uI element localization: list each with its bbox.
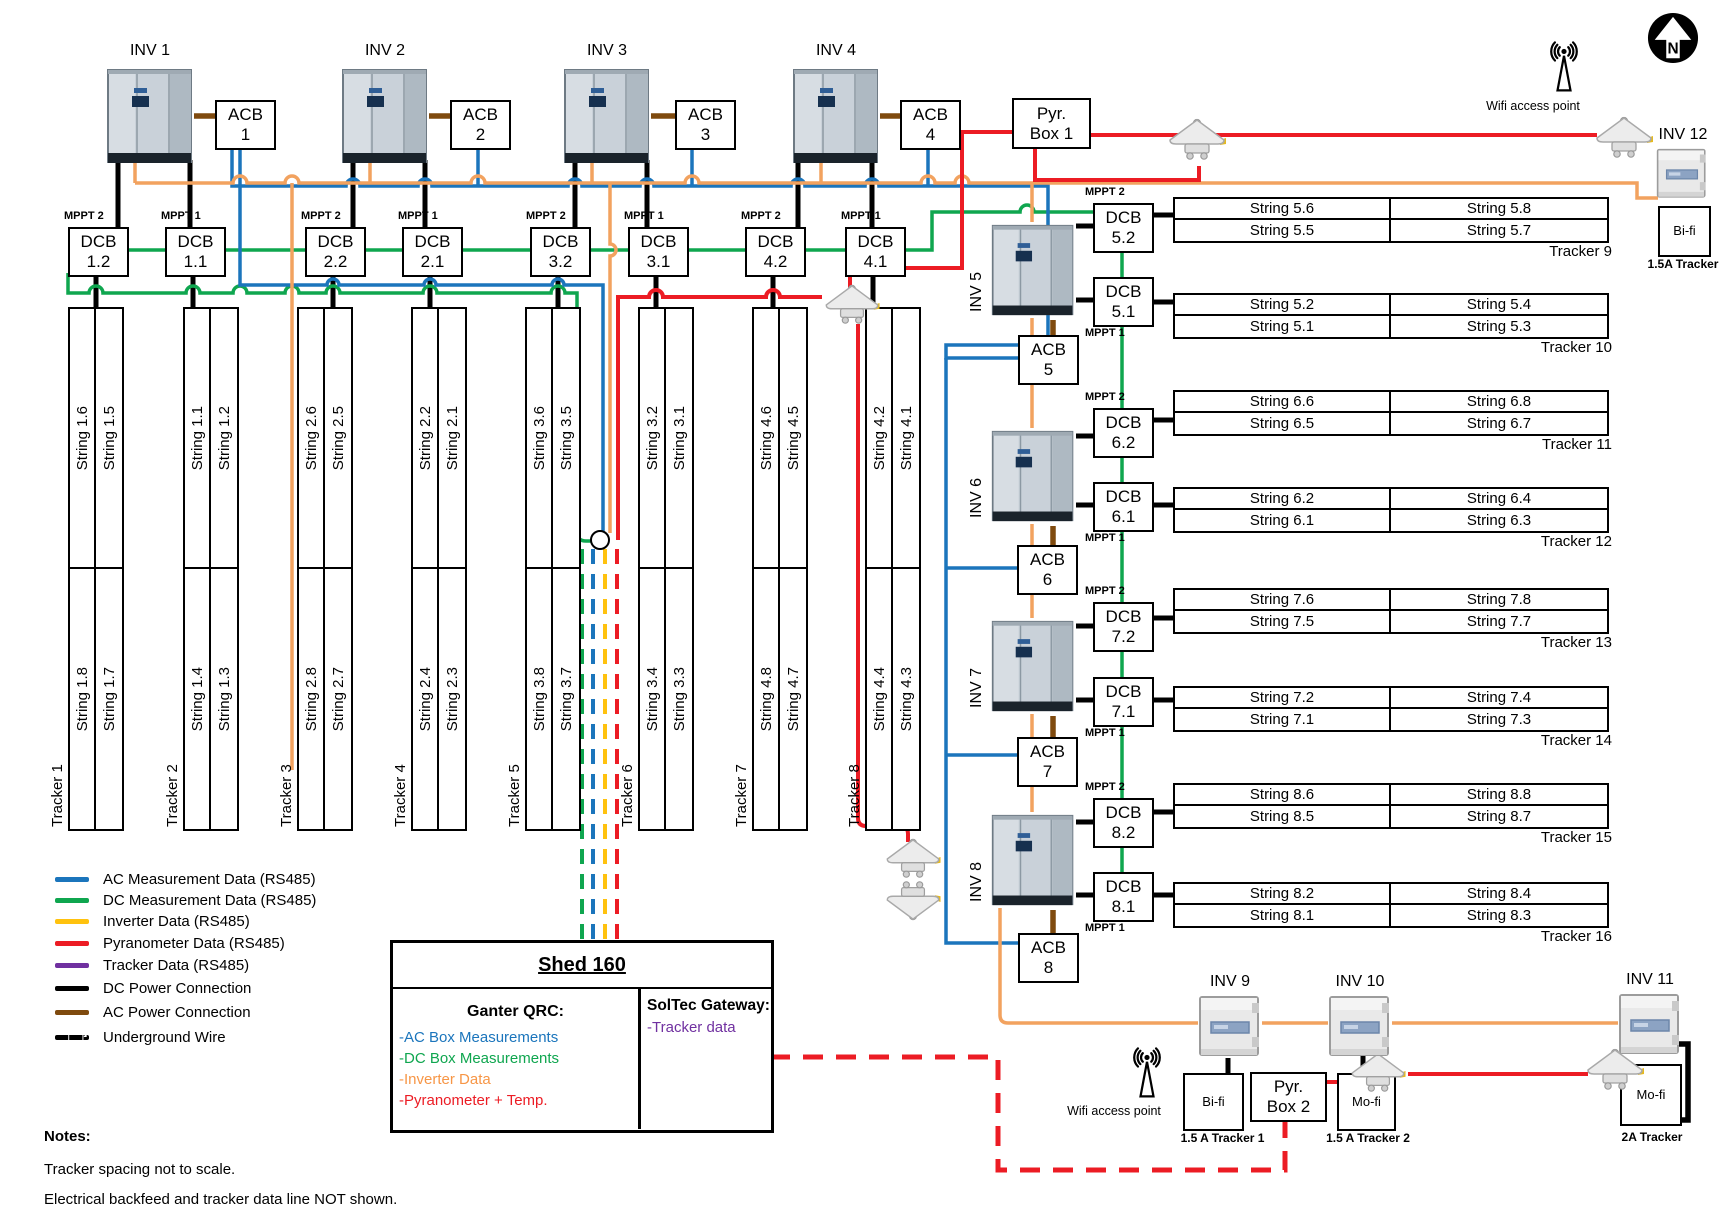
mppt-label: MPPT 1 bbox=[841, 210, 881, 222]
string-label: String 1.3 bbox=[216, 667, 233, 731]
string-cell: String 5.2 bbox=[1175, 295, 1391, 316]
string-cell: String 1.3 bbox=[211, 569, 237, 829]
mppt-label: MPPT 1 bbox=[1085, 327, 1125, 339]
comm-box-sublabel: 2A Tracker bbox=[1612, 1130, 1692, 1144]
tracker-table: String 2.2String 2.1String 2.4String 2.3 bbox=[411, 307, 467, 831]
string-label: String 4.5 bbox=[785, 406, 802, 470]
tracker-table: String 4.2String 4.1String 4.4String 4.3 bbox=[865, 307, 921, 831]
string-cell: String 7.6 bbox=[1175, 590, 1391, 611]
string-cell: String 3.5 bbox=[553, 309, 579, 569]
inverter-label: INV 1 bbox=[97, 42, 203, 60]
string-cell: String 6.1 bbox=[1175, 510, 1391, 531]
string-cell: String 3.2 bbox=[640, 309, 666, 569]
inverter-label: INV 4 bbox=[783, 42, 889, 60]
string-cell: String 8.3 bbox=[1391, 905, 1607, 926]
legend-row: Underground Wire bbox=[55, 1029, 226, 1045]
string-label: String 3.8 bbox=[531, 667, 548, 731]
shed-divider bbox=[638, 989, 641, 1129]
string-cell: String 2.3 bbox=[439, 569, 465, 829]
dcb-box: DCB 6.1 bbox=[1093, 482, 1154, 532]
legend-row: DC Measurement Data (RS485) bbox=[55, 892, 316, 908]
inverter-unit bbox=[107, 66, 193, 171]
string-label: String 2.4 bbox=[417, 667, 434, 731]
string-cell: String 6.4 bbox=[1391, 489, 1607, 510]
string-cell: String 8.4 bbox=[1391, 884, 1607, 905]
string-cell: String 7.1 bbox=[1175, 709, 1391, 730]
tracker-table: String 8.6String 8.8String 8.5String 8.7 bbox=[1173, 783, 1609, 829]
string-cell: String 5.3 bbox=[1391, 316, 1607, 337]
string-cell: String 2.8 bbox=[299, 569, 325, 829]
string-label: String 4.4 bbox=[871, 667, 888, 731]
string-cell: String 6.3 bbox=[1391, 510, 1607, 531]
shed-title: Shed 160 bbox=[393, 943, 771, 989]
string-label: String 1.1 bbox=[189, 406, 206, 470]
tracker-name-label: Tracker 2 bbox=[164, 700, 181, 827]
acb-box: ACB 7 bbox=[1017, 737, 1078, 787]
legend-label: AC Measurement Data (RS485) bbox=[103, 871, 316, 888]
dcb-box: DCB 8.1 bbox=[1093, 872, 1154, 922]
string-cell: String 7.7 bbox=[1391, 611, 1607, 632]
string-label: String 2.1 bbox=[444, 406, 461, 470]
dcb-box: DCB 5.1 bbox=[1093, 277, 1154, 327]
shed-left-item: -Inverter Data bbox=[399, 1071, 491, 1088]
string-cell: String 3.6 bbox=[527, 309, 553, 569]
tracker-table: String 6.2String 6.4String 6.1String 6.3 bbox=[1173, 487, 1609, 533]
string-cell: String 1.2 bbox=[211, 309, 237, 569]
comm-box-sublabel: 1.5A Tracker bbox=[1638, 257, 1728, 271]
tracker-name-label: Tracker 11 bbox=[1400, 436, 1612, 453]
legend-label: Tracker Data (RS485) bbox=[103, 957, 249, 974]
comm-box-bifi-top: Bi-fi bbox=[1658, 206, 1711, 257]
inverter-label: INV 2 bbox=[332, 42, 438, 60]
dcb-box: DCB 2.1 bbox=[402, 227, 463, 277]
dcb-box: DCB 6.2 bbox=[1093, 408, 1154, 458]
string-cell: String 1.4 bbox=[185, 569, 211, 829]
legend-label: DC Power Connection bbox=[103, 980, 251, 997]
string-cell: String 7.2 bbox=[1175, 688, 1391, 709]
string-cell: String 6.6 bbox=[1175, 392, 1391, 413]
string-label: String 2.2 bbox=[417, 406, 434, 470]
dcb-box: DCB 1.1 bbox=[165, 227, 226, 277]
legend-label: DC Measurement Data (RS485) bbox=[103, 892, 316, 909]
dcb-box: DCB 2.2 bbox=[305, 227, 366, 277]
dcb-box: DCB 3.2 bbox=[530, 227, 591, 277]
string-cell: String 3.7 bbox=[553, 569, 579, 829]
string-cell: String 1.7 bbox=[96, 569, 122, 829]
inverter-label: INV 12 bbox=[1650, 126, 1716, 144]
string-label: String 4.2 bbox=[871, 406, 888, 470]
shed-left-item: -DC Box Measurements bbox=[399, 1050, 559, 1067]
inverter-unit bbox=[1328, 995, 1392, 1064]
acb-box: ACB 3 bbox=[675, 100, 736, 150]
legend-swatch-dc_black bbox=[55, 986, 89, 991]
dcb-box: DCB 1.2 bbox=[68, 227, 129, 277]
string-cell: String 1.6 bbox=[70, 309, 96, 569]
mppt-label: MPPT 2 bbox=[526, 210, 566, 222]
string-cell: String 3.8 bbox=[527, 569, 553, 829]
tracker-table: String 5.2String 5.4String 5.1String 5.3 bbox=[1173, 293, 1609, 339]
string-label: String 4.1 bbox=[898, 406, 915, 470]
mppt-label: MPPT 1 bbox=[624, 210, 664, 222]
string-cell: String 5.4 bbox=[1391, 295, 1607, 316]
string-cell: String 4.7 bbox=[780, 569, 806, 829]
tracker-table: String 7.2String 7.4String 7.1String 7.3 bbox=[1173, 686, 1609, 732]
string-label: String 3.7 bbox=[558, 667, 575, 731]
string-label: String 1.8 bbox=[74, 667, 91, 731]
legend-swatch-dc_black bbox=[55, 1035, 89, 1040]
legend-swatch-tracker_purple bbox=[55, 963, 89, 968]
string-label: String 3.3 bbox=[671, 667, 688, 731]
string-label: String 4.8 bbox=[758, 667, 775, 731]
acb-box: ACB 1 bbox=[215, 100, 276, 150]
string-cell: String 5.5 bbox=[1175, 220, 1391, 241]
string-cell: String 4.8 bbox=[754, 569, 780, 829]
acb-box: ACB 4 bbox=[900, 100, 961, 150]
string-label: String 4.6 bbox=[758, 406, 775, 470]
tracker-table: String 7.6String 7.8String 7.5String 7.7 bbox=[1173, 588, 1609, 634]
inverter-label: INV 8 bbox=[968, 820, 986, 902]
mppt-label: MPPT 1 bbox=[1085, 922, 1125, 934]
pyranometer-icon bbox=[1168, 118, 1226, 165]
string-label: String 2.7 bbox=[330, 667, 347, 731]
string-label: String 1.7 bbox=[101, 667, 118, 731]
string-cell: String 2.1 bbox=[439, 309, 465, 569]
wifi-access-point-label-top: Wifi access point bbox=[1483, 99, 1583, 113]
comm-box-sublabel: 1.5 A Tracker 2 bbox=[1318, 1131, 1418, 1145]
legend-swatch-ac_blue bbox=[55, 877, 89, 882]
acb-box: ACB 8 bbox=[1018, 933, 1079, 983]
mppt-label: MPPT 2 bbox=[301, 210, 341, 222]
mppt-label: MPPT 2 bbox=[64, 210, 104, 222]
tracker-name-label: Tracker 6 bbox=[619, 700, 636, 827]
string-cell: String 4.2 bbox=[867, 309, 893, 569]
legend-swatch-inverter_yellow bbox=[55, 919, 89, 924]
mppt-label: MPPT 1 bbox=[398, 210, 438, 222]
tracker-name-label: Tracker 7 bbox=[733, 700, 750, 827]
mppt-label: MPPT 2 bbox=[741, 210, 781, 222]
inverter-unit bbox=[990, 428, 1076, 529]
string-label: String 3.5 bbox=[558, 406, 575, 470]
string-cell: String 5.7 bbox=[1391, 220, 1607, 241]
string-label: String 2.3 bbox=[444, 667, 461, 731]
string-label: String 1.5 bbox=[101, 406, 118, 470]
legend-row: Tracker Data (RS485) bbox=[55, 957, 249, 973]
tracker-table: String 1.1String 1.2String 1.4String 1.3 bbox=[183, 307, 239, 831]
wifi-access-point-label-bottom: Wifi access point bbox=[1064, 1104, 1164, 1118]
string-cell: String 3.4 bbox=[640, 569, 666, 829]
string-label: String 2.6 bbox=[303, 406, 320, 470]
wifi-icon bbox=[1545, 38, 1583, 96]
mppt-label: MPPT 1 bbox=[1085, 727, 1125, 739]
mppt-label: MPPT 2 bbox=[1085, 585, 1125, 597]
acb-box: ACB 6 bbox=[1017, 545, 1078, 595]
tracker-name-label: Tracker 3 bbox=[278, 700, 295, 827]
legend-row: AC Power Connection bbox=[55, 1004, 251, 1020]
tracker-table: String 6.6String 6.8String 6.5String 6.7 bbox=[1173, 390, 1609, 436]
string-label: String 1.2 bbox=[216, 406, 233, 470]
tracker-name-label: Tracker 14 bbox=[1400, 732, 1612, 749]
string-cell: String 2.5 bbox=[325, 309, 351, 569]
inverter-label: INV 6 bbox=[968, 436, 986, 518]
string-cell: String 5.6 bbox=[1175, 199, 1391, 220]
inverter-label: INV 3 bbox=[554, 42, 660, 60]
inverter-unit bbox=[1618, 993, 1682, 1062]
legend-row: AC Measurement Data (RS485) bbox=[55, 871, 316, 887]
notes-heading: Notes: bbox=[44, 1128, 91, 1145]
string-cell: String 5.8 bbox=[1391, 199, 1607, 220]
string-cell: String 4.3 bbox=[893, 569, 919, 829]
shed-left-item: -Pyranometer + Temp. bbox=[399, 1092, 548, 1109]
acb-box: ACB 2 bbox=[450, 100, 511, 150]
comm-box-bifi-bottom: Bi-fi bbox=[1183, 1073, 1244, 1131]
shed-right-item: -Tracker data bbox=[647, 1019, 736, 1036]
tracker-table: String 3.2String 3.1String 3.4String 3.3 bbox=[638, 307, 694, 831]
string-cell: String 4.1 bbox=[893, 309, 919, 569]
shed-left-title: Ganter QRC: bbox=[393, 1003, 638, 1021]
legend-swatch-ac_brown bbox=[55, 1010, 89, 1015]
inverter-unit bbox=[1655, 148, 1709, 205]
string-cell: String 2.4 bbox=[413, 569, 439, 829]
tracker-name-label: Tracker 16 bbox=[1400, 928, 1612, 945]
mppt-label: MPPT 1 bbox=[1085, 532, 1125, 544]
inverter-label: INV 11 bbox=[1606, 971, 1694, 989]
dcb-box: DCB 7.2 bbox=[1093, 602, 1154, 652]
inverter-unit bbox=[990, 812, 1076, 913]
string-cell: String 7.8 bbox=[1391, 590, 1607, 611]
string-label: String 1.4 bbox=[189, 667, 206, 731]
tracker-name-label: Tracker 10 bbox=[1400, 339, 1612, 356]
shed-box: Shed 160 Ganter QRC: SolTec Gateway: -AC… bbox=[390, 940, 774, 1133]
inverter-label: INV 10 bbox=[1316, 973, 1404, 991]
inverter-unit bbox=[342, 66, 428, 171]
tracker-name-label: Tracker 8 bbox=[846, 700, 863, 827]
inverter-unit bbox=[793, 66, 879, 171]
mppt-label: MPPT 2 bbox=[1085, 391, 1125, 403]
string-cell: String 1.8 bbox=[70, 569, 96, 829]
tracker-table: String 2.6String 2.5String 2.8String 2.7 bbox=[297, 307, 353, 831]
string-cell: String 4.5 bbox=[780, 309, 806, 569]
tracker-name-label: Tracker 1 bbox=[49, 700, 66, 827]
compass-north-icon bbox=[1647, 12, 1699, 69]
tracker-table: String 4.6String 4.5String 4.8String 4.7 bbox=[752, 307, 808, 831]
string-cell: String 8.7 bbox=[1391, 806, 1607, 827]
shed-left-item: -AC Box Measurements bbox=[399, 1029, 558, 1046]
string-cell: String 6.2 bbox=[1175, 489, 1391, 510]
string-label: String 2.8 bbox=[303, 667, 320, 731]
string-cell: String 3.3 bbox=[666, 569, 692, 829]
dcb-box: DCB 5.2 bbox=[1093, 203, 1154, 253]
legend-swatch-pyranometer_red bbox=[55, 941, 89, 946]
legend-row: DC Power Connection bbox=[55, 980, 251, 996]
string-cell: String 7.3 bbox=[1391, 709, 1607, 730]
string-cell: String 2.6 bbox=[299, 309, 325, 569]
string-label: String 2.5 bbox=[330, 406, 347, 470]
string-label: String 3.1 bbox=[671, 406, 688, 470]
tracker-table: String 1.6String 1.5String 1.8String 1.7 bbox=[68, 307, 124, 831]
string-cell: String 7.4 bbox=[1391, 688, 1607, 709]
tracker-name-label: Tracker 13 bbox=[1400, 634, 1612, 651]
string-cell: String 6.5 bbox=[1175, 413, 1391, 434]
pyr-box: Pyr. Box 2 bbox=[1250, 1072, 1327, 1122]
legend-row: Pyranometer Data (RS485) bbox=[55, 935, 285, 951]
string-cell: String 1.5 bbox=[96, 309, 122, 569]
tracker-table: String 8.2String 8.4String 8.1String 8.3 bbox=[1173, 882, 1609, 928]
inverter-unit bbox=[1198, 995, 1262, 1064]
legend-row: Inverter Data (RS485) bbox=[55, 913, 250, 929]
tracker-name-label: Tracker 5 bbox=[506, 700, 523, 827]
string-cell: String 8.6 bbox=[1175, 785, 1391, 806]
dcb-box: DCB 7.1 bbox=[1093, 677, 1154, 727]
string-label: String 1.6 bbox=[74, 406, 91, 470]
string-cell: String 2.2 bbox=[413, 309, 439, 569]
solar-wiring-diagram: N bbox=[0, 0, 1729, 1222]
string-label: String 3.2 bbox=[644, 406, 661, 470]
string-label: String 3.4 bbox=[644, 667, 661, 731]
notes-line-1: Tracker spacing not to scale. bbox=[44, 1161, 235, 1178]
string-cell: String 4.4 bbox=[867, 569, 893, 829]
comm-box-sublabel: 1.5 A Tracker 1 bbox=[1175, 1131, 1270, 1145]
inverter-label: INV 5 bbox=[968, 230, 986, 312]
string-cell: String 3.1 bbox=[666, 309, 692, 569]
pyranometer-icon-flipped bbox=[885, 876, 941, 921]
inverter-unit bbox=[990, 222, 1076, 323]
mppt-label: MPPT 2 bbox=[1085, 781, 1125, 793]
tracker-table: String 5.6String 5.8String 5.5String 5.7 bbox=[1173, 197, 1609, 243]
string-cell: String 8.2 bbox=[1175, 884, 1391, 905]
wifi-icon bbox=[1128, 1044, 1166, 1102]
mppt-label: MPPT 1 bbox=[161, 210, 201, 222]
shed-right-title: SolTec Gateway: bbox=[647, 997, 770, 1015]
string-label: String 4.7 bbox=[785, 667, 802, 731]
legend-label: Underground Wire bbox=[103, 1029, 226, 1046]
notes-line-2: Electrical backfeed and tracker data lin… bbox=[44, 1191, 397, 1208]
string-cell: String 2.7 bbox=[325, 569, 351, 829]
pyranometer-icon bbox=[1595, 116, 1653, 163]
pyr-box: Pyr. Box 1 bbox=[1012, 98, 1091, 149]
tracker-name-label: Tracker 4 bbox=[392, 700, 409, 827]
string-cell: String 6.8 bbox=[1391, 392, 1607, 413]
string-cell: String 7.5 bbox=[1175, 611, 1391, 632]
legend-label: Inverter Data (RS485) bbox=[103, 913, 250, 930]
legend-label: AC Power Connection bbox=[103, 1004, 251, 1021]
inverter-unit bbox=[564, 66, 650, 171]
dcb-box: DCB 3.1 bbox=[628, 227, 689, 277]
string-cell: String 8.1 bbox=[1175, 905, 1391, 926]
legend-swatch-dc_green bbox=[55, 898, 89, 903]
tracker-table: String 3.6String 3.5String 3.8String 3.7 bbox=[525, 307, 581, 831]
mppt-label: MPPT 2 bbox=[1085, 186, 1125, 198]
inverter-label: INV 7 bbox=[968, 626, 986, 708]
acb-box: ACB 5 bbox=[1018, 335, 1079, 385]
underground-junction bbox=[591, 531, 609, 549]
string-cell: String 1.1 bbox=[185, 309, 211, 569]
tracker-name-label: Tracker 15 bbox=[1400, 829, 1612, 846]
inverter-unit bbox=[990, 618, 1076, 719]
inverter-label: INV 9 bbox=[1186, 973, 1274, 991]
string-cell: String 5.1 bbox=[1175, 316, 1391, 337]
string-label: String 4.3 bbox=[898, 667, 915, 731]
string-label: String 3.6 bbox=[531, 406, 548, 470]
string-cell: String 4.6 bbox=[754, 309, 780, 569]
dcb-box: DCB 4.2 bbox=[745, 227, 806, 277]
legend-label: Pyranometer Data (RS485) bbox=[103, 935, 285, 952]
dcb-box: DCB 4.1 bbox=[845, 227, 906, 277]
tracker-name-label: Tracker 12 bbox=[1400, 533, 1612, 550]
string-cell: String 8.5 bbox=[1175, 806, 1391, 827]
string-cell: String 6.7 bbox=[1391, 413, 1607, 434]
dcb-box: DCB 8.2 bbox=[1093, 798, 1154, 848]
tracker-name-label: Tracker 9 bbox=[1400, 243, 1612, 260]
string-cell: String 8.8 bbox=[1391, 785, 1607, 806]
pyranometer-icon bbox=[824, 284, 880, 329]
